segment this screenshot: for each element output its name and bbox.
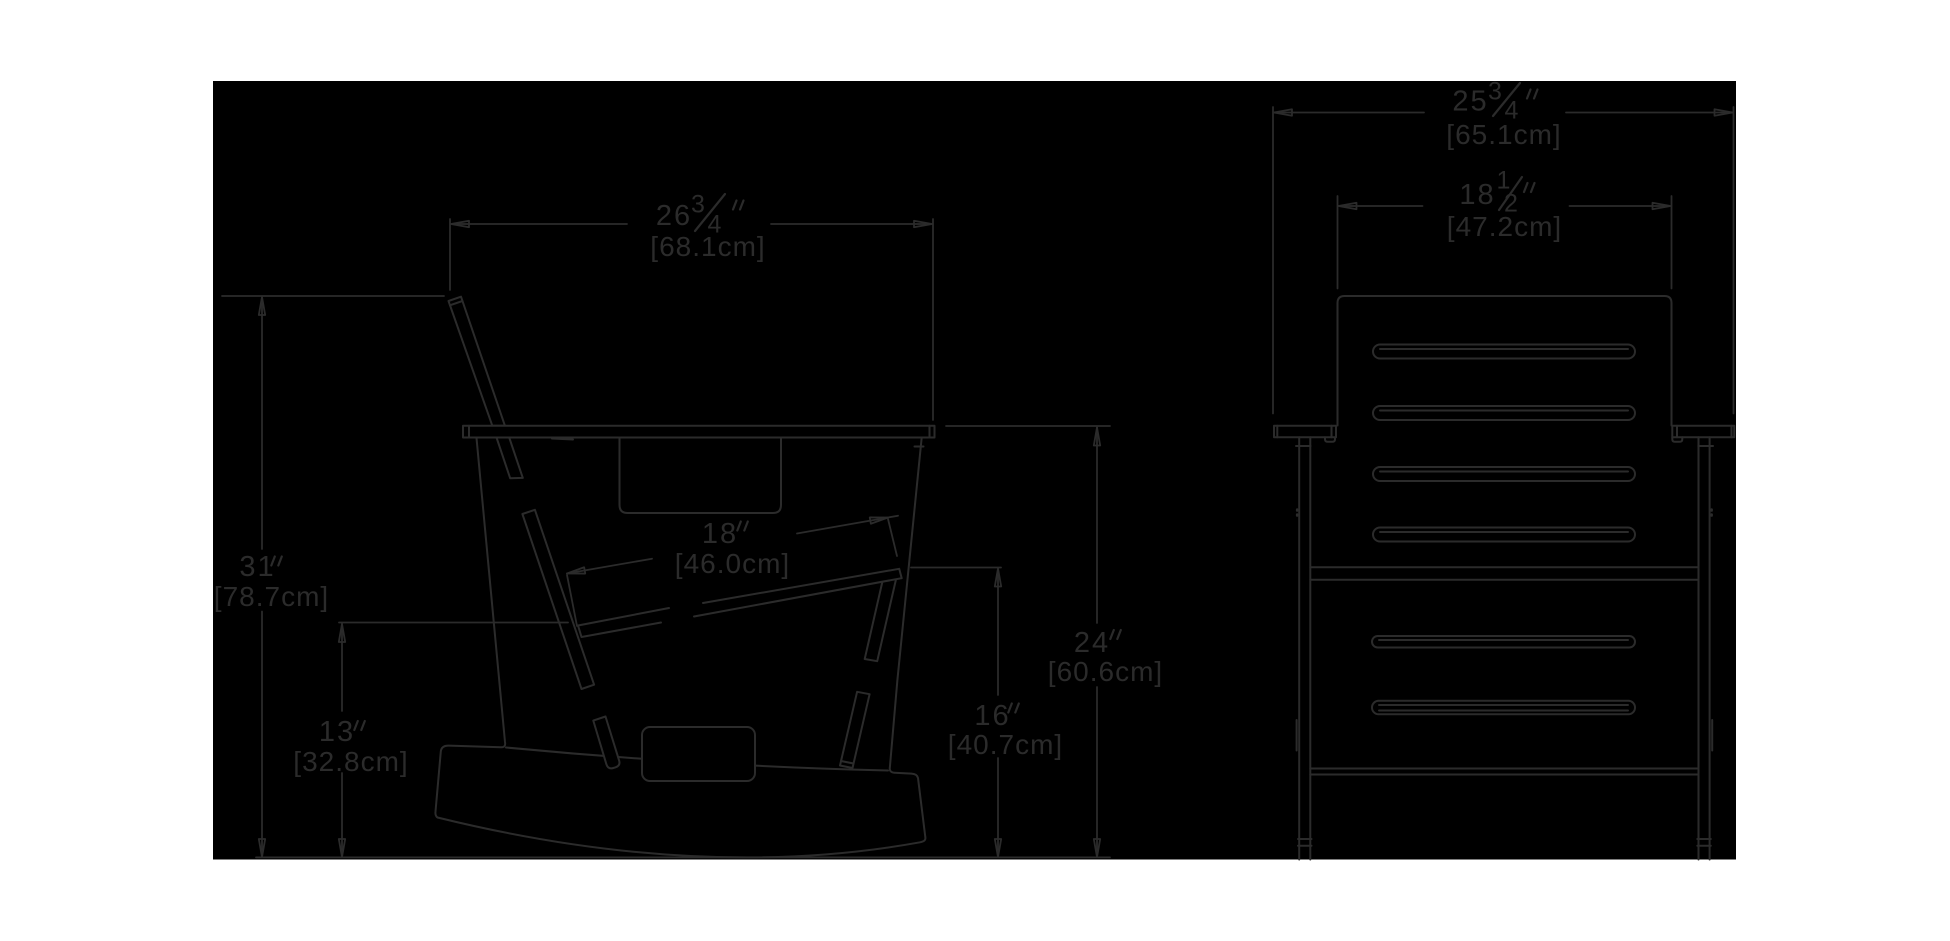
svg-text:18: 18 [1459,179,1495,211]
svg-text:3: 3 [691,191,705,219]
svg-text:24: 24 [1074,627,1110,659]
svg-text:[32.8cm]: [32.8cm] [293,746,408,777]
svg-text:[40.7cm]: [40.7cm] [948,729,1063,760]
svg-text:3: 3 [1488,78,1502,106]
svg-text:31: 31 [239,551,275,583]
svg-text:[46.0cm]: [46.0cm] [675,548,790,579]
svg-text:18: 18 [702,518,738,550]
svg-text:25: 25 [1452,86,1488,118]
svg-text:16: 16 [974,700,1010,732]
svg-text:[78.7cm]: [78.7cm] [214,581,329,612]
svg-text:13: 13 [319,716,355,748]
svg-text:[60.6cm]: [60.6cm] [1048,656,1163,687]
svg-text:26: 26 [656,200,692,232]
